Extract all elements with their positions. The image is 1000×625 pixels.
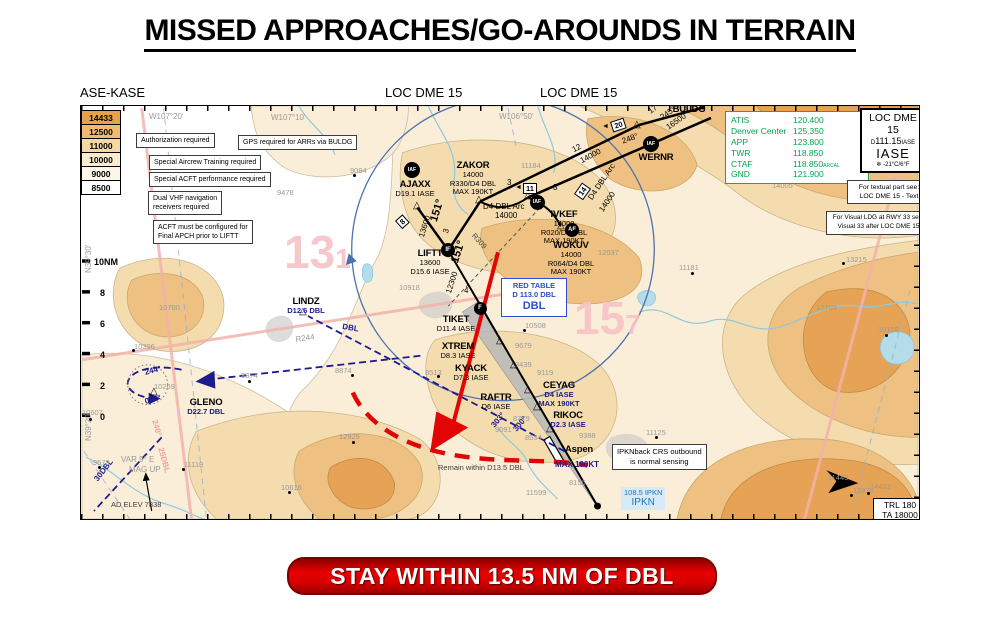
transition-level: TRL 180 <box>877 500 920 510</box>
spot-elevation: 12926 <box>339 433 360 441</box>
course-label: VAR 9° E <box>121 456 154 464</box>
note-aircrew-training: Special Aircrew Training required <box>149 155 261 170</box>
course-label: 14000 <box>579 148 602 166</box>
comm-frequencies-box: ATIS120.400Denver Center125.350APP123.80… <box>725 111 869 184</box>
waypoint-name: WERNR <box>639 153 674 163</box>
waypoint-raftr: RAFTRD6 IASE <box>480 393 511 412</box>
course-label: 3 <box>553 184 557 192</box>
ref-textual-box: For textual part see: LOC DME 15 - Text <box>847 180 920 204</box>
spot-elevation: 8874 <box>241 372 258 380</box>
waypoint-liftt: LIFTT13600D15.6 IASE <box>410 249 449 276</box>
spot-elevation-dot <box>288 491 291 494</box>
spot-elevation-dot <box>523 329 526 332</box>
spot-elevation: 10700 <box>159 304 180 312</box>
course-label: MAX 190KT <box>555 461 599 469</box>
course-label: 3 <box>507 179 511 187</box>
spot-elevation-dot <box>839 482 842 485</box>
comm-row-ctaf: CTAF118.850ARCAL <box>731 159 863 170</box>
spot-elevation-dot <box>437 375 440 378</box>
spot-elevation-dot <box>248 380 251 383</box>
temperature-limit: ❄ -21°C/6°F <box>864 162 920 169</box>
course-label: AD ELEV 7838 <box>111 501 161 509</box>
spot-elevation: 11599 <box>526 489 546 497</box>
waypoint-detail: D15.6 IASE <box>410 268 449 276</box>
note-authorization: Authorization required <box>136 133 215 148</box>
course-label: 8 <box>100 289 105 298</box>
spot-elevation-dot <box>98 466 101 469</box>
elevation-band-8500: 8500 <box>81 180 121 195</box>
spot-elevation: 11184 <box>521 162 541 170</box>
waypoint-detail: D22.7 DBL <box>187 408 225 416</box>
spot-elevation: 9084 <box>350 167 367 175</box>
fix-triangle-icon: △ <box>496 336 504 346</box>
vor-ident: DBL <box>506 300 562 314</box>
procedure-type: LOC DME <box>864 112 920 124</box>
waypoint-ceyag: CEYAGD4 IASEMAX 190KT <box>538 381 579 408</box>
spot-elevation: 9388 <box>579 432 596 440</box>
comm-row-atis: ATIS120.400 <box>731 115 863 126</box>
spot-elevation: 10508 <box>525 322 546 330</box>
ref-visual-33-box: For Visual LDG at RWY 33 see: Visual 33 … <box>826 211 920 235</box>
approach-chart-map: 17245°16500248°121400033D4 DBL Arc14000D… <box>80 105 920 520</box>
spot-elevation: 13215 <box>846 256 867 264</box>
red-table-vor-box: RED TABLE D 113.0 DBL DBL <box>501 278 567 317</box>
spot-elevation-dot <box>89 418 92 421</box>
waypoint-detail: D12.6 DBL <box>287 307 325 315</box>
grid-mora-value: 131 <box>284 229 351 275</box>
dme-arrow-icon: ◄ <box>515 184 522 191</box>
graticule-ticks-bottom <box>81 514 919 519</box>
course-label: 240° <box>150 419 162 437</box>
elevation-band-10000: 10000 <box>81 152 121 167</box>
waypoint-detail: MAX 190KT <box>538 400 579 408</box>
snowflake-icon: ❄ <box>876 162 881 168</box>
course-label: MAG UP <box>129 466 161 474</box>
waypoint-rikoc: RIKOCD2.3 IASE <box>550 411 585 430</box>
comm-row-denver-center: Denver Center125.350 <box>731 126 863 137</box>
course-label: 10NM <box>94 258 118 267</box>
spot-elevation: 10396 <box>134 343 155 351</box>
fix-triangle-icon: △ <box>524 385 532 395</box>
elevation-color-legend: 1443312500110001000090008500 <box>81 111 121 195</box>
elevation-band-9000: 9000 <box>81 166 121 181</box>
elevation-band-12500: 12500 <box>81 124 121 139</box>
waypoint-lindz: LINDZD12.6 DBL <box>287 297 325 316</box>
fix-triangle-icon: △ <box>633 120 641 130</box>
comm-row-twr: TWR118.850 <box>731 148 863 159</box>
spot-elevation-dot <box>655 436 658 439</box>
procedure-ident-box: LOC DME 15 D111.15IASE IASE ❄ -21°C/6°F <box>860 108 920 173</box>
ipkn-ident: IPKN <box>624 497 662 509</box>
spot-elevation-dot <box>885 334 888 337</box>
course-label: R309 <box>470 232 488 250</box>
page-title: MISSED APPROACHES/GO-AROUNDS IN TERRAIN <box>0 14 1000 48</box>
waypoint-ajaxx: AJAXXD19.1 IASE <box>395 180 434 199</box>
grid-mora-value: 157 <box>574 295 641 341</box>
spot-elevation-dot <box>691 272 694 275</box>
waypoint-detail: MAX 190KT <box>548 268 594 276</box>
elevation-band-11000: 11000 <box>81 138 121 153</box>
spot-elevation: 9573 <box>93 459 110 467</box>
fix-role-badge: IAF <box>643 136 659 152</box>
fix-role-badge: IAF <box>404 162 420 178</box>
spot-elevation-dot <box>182 468 185 471</box>
spot-elevation: 8156 <box>569 479 586 487</box>
spot-elevation: 10607 <box>82 409 103 417</box>
course-label: DBL <box>342 323 360 333</box>
dme-distance-box: 11 <box>523 183 537 194</box>
course-label: N39°30' <box>85 245 93 273</box>
ipkn-localizer-label: 108.5 IPKN IPKN <box>621 487 665 510</box>
chart-code: ASE-KASE <box>80 85 145 100</box>
course-label: Remain within D13.5 DBL <box>438 464 524 472</box>
waypoint-detail: MAX 190KT <box>450 188 496 196</box>
fix-role-badge: F <box>474 302 487 315</box>
waypoint-kyack: KYACKD7.3 IASE <box>453 364 488 383</box>
course-label: 3 <box>442 228 451 235</box>
course-label: D4 DBL Arc <box>483 203 525 211</box>
course-label: 14000 <box>598 191 617 214</box>
spot-elevation: 10108 <box>878 326 899 334</box>
course-label: 248° <box>621 132 639 145</box>
waypoint-detail: D19.1 IASE <box>395 190 434 198</box>
spot-elevation: 9478 <box>277 189 294 197</box>
stay-within-banner: STAY WITHIN 13.5 NM OF DBL <box>287 557 717 595</box>
waypoint-detail: D8.3 IASE <box>440 352 475 360</box>
waypoint-tiket: TIKETD11.4 IASE <box>437 315 476 334</box>
spot-elevation-dot <box>842 262 845 265</box>
comm-row-app: APP123.800 <box>731 137 863 148</box>
spot-elevation: 11118 <box>184 461 203 469</box>
transition-altitude: TA 18000 <box>877 510 920 520</box>
chart-page: MISSED APPROACHES/GO-AROUNDS IN TERRAIN … <box>0 0 1000 625</box>
waypoint-detail: D7.3 IASE <box>453 374 488 382</box>
course-label: W106°50' <box>499 113 534 121</box>
dme-arrow-icon: ◄ <box>602 123 609 130</box>
course-label: 151° <box>429 198 446 223</box>
procedure-runway: 15 <box>864 124 920 136</box>
spot-elevation: 9679 <box>515 342 532 350</box>
fix-triangle-icon: △ <box>150 387 158 397</box>
course-label: 4 <box>464 287 468 295</box>
procedure-name-left: LOC DME 15 <box>385 85 462 100</box>
note-gps-buldg: GPS required for ARRs via BULDG <box>238 135 357 150</box>
spot-elevation: 8874 <box>335 367 352 375</box>
vor-frequency: D 113.0 DBL <box>506 290 562 299</box>
dme-distance-box: 20 <box>610 118 627 133</box>
waypoint-zakor: ZAKOR14000R330/D4 DBLMAX 190KT <box>450 161 496 196</box>
course-label: R244 <box>295 333 315 344</box>
waypoint-detail: D11.4 IASE <box>437 325 476 333</box>
spot-elevation: 12703 <box>816 304 837 312</box>
fix-triangle-icon: △ <box>413 201 421 211</box>
spot-elevation: 12037 <box>598 249 619 257</box>
ipkn-frequency: 108.5 IPKN <box>624 488 662 497</box>
spot-elevation: 11181 <box>679 264 699 272</box>
course-label: 13600 <box>418 215 432 239</box>
spot-elevation: 14433 <box>870 483 891 491</box>
procedure-name-right: LOC DME 15 <box>540 85 617 100</box>
spot-elevation: 11443 <box>828 474 848 482</box>
fix-role-badge: IAF <box>530 195 545 210</box>
elevation-band-14433: 14433 <box>81 110 121 125</box>
note-dual-vhf: Dual VHF navigation receivers required <box>148 191 222 215</box>
spot-elevation: 9091 <box>495 426 512 434</box>
comm-row-gnd: GND121.900 <box>731 169 863 180</box>
course-label: 2 <box>100 382 105 391</box>
localizer-ident: IASE <box>864 147 920 162</box>
dme-distance-box: 8 <box>395 214 410 229</box>
spot-elevation: 10616 <box>281 484 302 492</box>
spot-elevation: 8779 <box>513 415 530 423</box>
spot-elevation-dot <box>132 349 135 352</box>
spot-elevation-dot <box>352 441 355 444</box>
note-ipkn-back-crs: IPKNback CRS outbound is normal sensing <box>612 444 707 470</box>
waypoint-wernr: WERNR <box>639 153 674 163</box>
spot-elevation: 8534 <box>525 434 542 442</box>
spot-elevation-dot <box>353 174 356 177</box>
waypoint-aspen: Aspen <box>565 445 593 455</box>
course-label: 12 <box>571 143 583 154</box>
course-label: 244° <box>144 365 162 377</box>
spot-elevation: 10918 <box>399 284 420 292</box>
waypoint-xtrem: XTREMD8.3 IASE <box>440 342 475 361</box>
waypoint-detail: D2.3 IASE <box>550 421 585 429</box>
spot-elevation-dot <box>351 374 354 377</box>
waypoint-name: Aspen <box>565 445 593 455</box>
waypoint-detail: D6 IASE <box>480 403 511 411</box>
note-acft-performance: Special ACFT performance required <box>149 172 271 187</box>
spot-elevation-dot <box>850 494 853 497</box>
course-label: W107°10' <box>271 114 306 122</box>
waypoint-wokuv: WOKUV14000R064/D4 DBLMAX 190KT <box>548 241 594 276</box>
fix-triangle-icon: △ <box>475 195 483 205</box>
vor-name: RED TABLE <box>506 281 562 290</box>
course-label: 14000 <box>495 212 517 220</box>
fix-triangle-icon: △ <box>510 360 518 370</box>
trl-ta-box: TRL 180 TA 18000 <box>873 498 920 520</box>
spot-elevation: 9119 <box>537 369 553 377</box>
course-label: 6 <box>100 320 105 329</box>
note-final-apch-config: ACFT must be configured for Final APCH p… <box>153 220 253 244</box>
waypoint-gleno: GLENOD22.7 DBL <box>187 398 225 417</box>
course-label: W107°20' <box>149 113 184 121</box>
spot-elevation-dot <box>867 492 870 495</box>
course-label: 4 <box>100 351 105 360</box>
